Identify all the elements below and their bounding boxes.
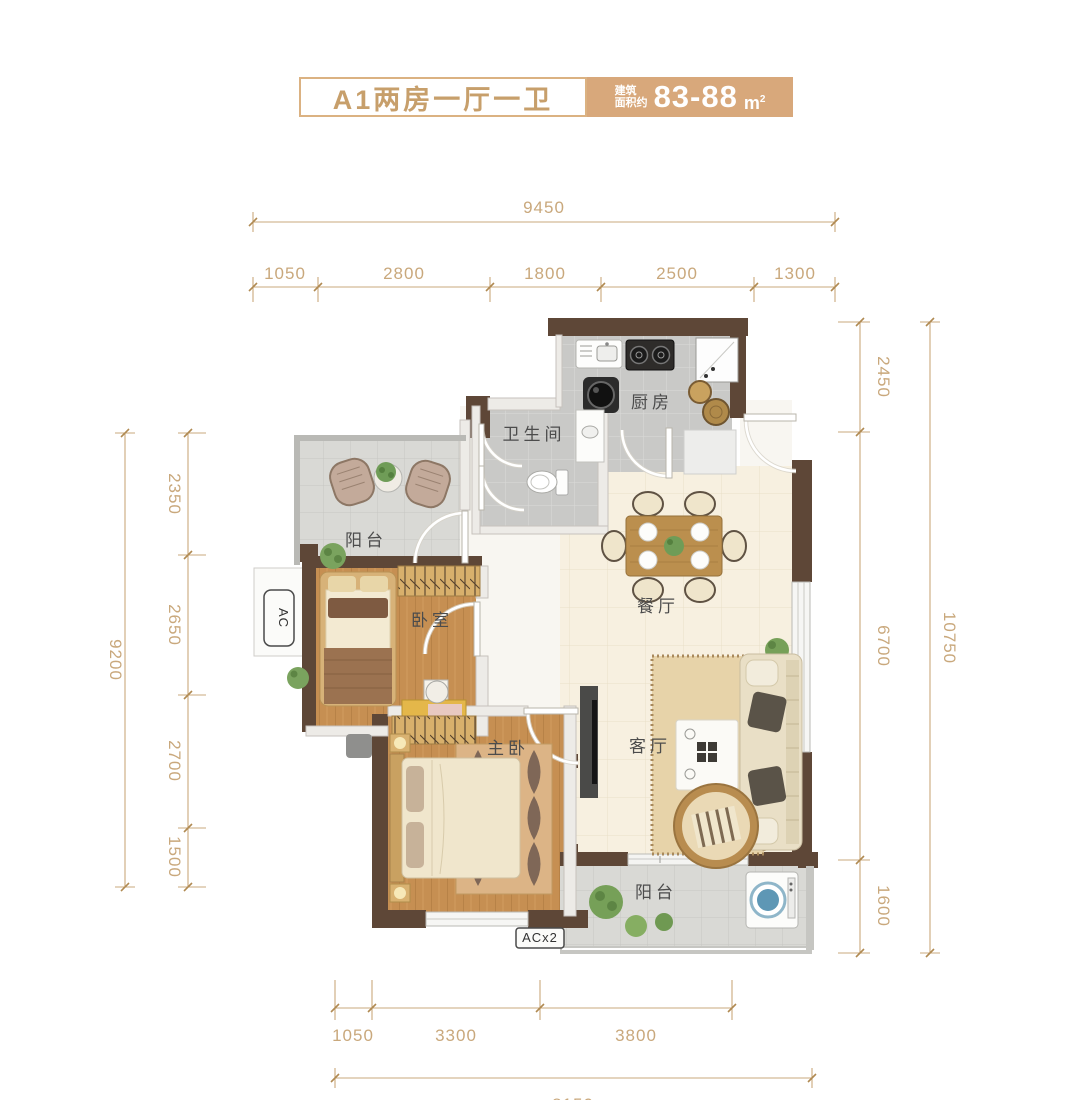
dim-top-total: 9450 bbox=[523, 198, 565, 217]
bedroom-bed bbox=[320, 572, 396, 706]
toilet-icon bbox=[527, 470, 568, 495]
ac-label: AC bbox=[276, 608, 291, 628]
tv-unit bbox=[580, 686, 598, 798]
master-nightstand-bottom bbox=[390, 884, 410, 902]
master-window bbox=[426, 912, 528, 926]
room-label-dining: 餐厅 bbox=[637, 597, 679, 616]
kitchen-landing bbox=[684, 430, 736, 474]
washing-machine bbox=[746, 872, 798, 928]
dim-left-total: 9200 bbox=[106, 639, 125, 681]
dim-left-seg: 2700 bbox=[165, 740, 184, 782]
dim-right-seg: 2450 bbox=[874, 356, 893, 398]
floor-plan-canvas: AC bbox=[0, 0, 1080, 1100]
washing-machine-kitchen bbox=[583, 377, 619, 413]
master-bed bbox=[390, 754, 520, 882]
acx2-label: ACx2 bbox=[522, 930, 558, 945]
dim-bottom-seg: 3800 bbox=[615, 1026, 657, 1045]
plant-balcony-top bbox=[320, 543, 346, 569]
balcony-top-rail-top bbox=[294, 435, 466, 441]
dim-left-seg: 2650 bbox=[165, 604, 184, 646]
master-nightstand-top bbox=[390, 734, 410, 752]
dim-right-total: 10750 bbox=[940, 612, 959, 664]
dim-top-seg: 1300 bbox=[774, 264, 816, 283]
stove-icon bbox=[626, 340, 674, 370]
plant-ac-side bbox=[287, 667, 309, 689]
pouf bbox=[346, 734, 372, 758]
dimensions-top: 9450 1050 2800 1800 2500 1300 bbox=[249, 198, 839, 302]
dining-table bbox=[626, 516, 722, 576]
dim-left-seg: 1500 bbox=[165, 836, 184, 878]
dim-bottom-seg: 1050 bbox=[332, 1026, 374, 1045]
dim-bottom-seg: 3300 bbox=[435, 1026, 477, 1045]
dining-chair bbox=[685, 492, 715, 516]
dim-top-seg: 2800 bbox=[383, 264, 425, 283]
dim-top-seg: 1050 bbox=[264, 264, 306, 283]
dimensions-right: 2450 6700 1600 10750 bbox=[838, 318, 959, 957]
dim-left-seg: 2350 bbox=[165, 473, 184, 515]
dining-chair bbox=[602, 531, 626, 561]
dim-right-seg: 1600 bbox=[874, 885, 893, 927]
round-chair bbox=[674, 784, 758, 868]
dim-top-seg: 1800 bbox=[524, 264, 566, 283]
room-label-bedroom: 卧室 bbox=[411, 611, 453, 630]
bedroom-wardrobe bbox=[398, 566, 480, 596]
room-label-balcony-bottom: 阳台 bbox=[635, 883, 677, 902]
dining-chair bbox=[722, 531, 746, 561]
balcony-bottom-rail-right bbox=[806, 866, 814, 950]
dim-top-seg: 2500 bbox=[656, 264, 698, 283]
floorplan-page: A1两房一厅一卫 建筑 面积约 83-88 m2 bbox=[0, 0, 1080, 1100]
room-label-bathroom: 卫生间 bbox=[503, 425, 566, 444]
room-label-balcony-top: 阳台 bbox=[345, 531, 387, 550]
dim-right-seg: 6700 bbox=[874, 625, 893, 667]
balcony-top-rail-left bbox=[294, 435, 300, 565]
kitchen-sink bbox=[576, 340, 622, 368]
wash-basin bbox=[576, 410, 604, 462]
room-label-kitchen: 厨房 bbox=[631, 393, 673, 412]
dining-chair bbox=[633, 492, 663, 516]
room-label-living: 客厅 bbox=[629, 737, 671, 756]
dim-bottom-total: 8150 bbox=[552, 1095, 594, 1100]
coffee-table bbox=[676, 720, 738, 790]
dimensions-bottom: 1050 3300 3800 8150 bbox=[331, 980, 816, 1100]
acx2-unit: ACx2 bbox=[516, 928, 564, 948]
room-label-master: 主卧 bbox=[487, 739, 529, 758]
fridge-icon bbox=[696, 338, 738, 382]
dining-chair bbox=[685, 578, 715, 602]
dimensions-left: 9200 2350 2650 2700 1500 bbox=[106, 429, 206, 891]
